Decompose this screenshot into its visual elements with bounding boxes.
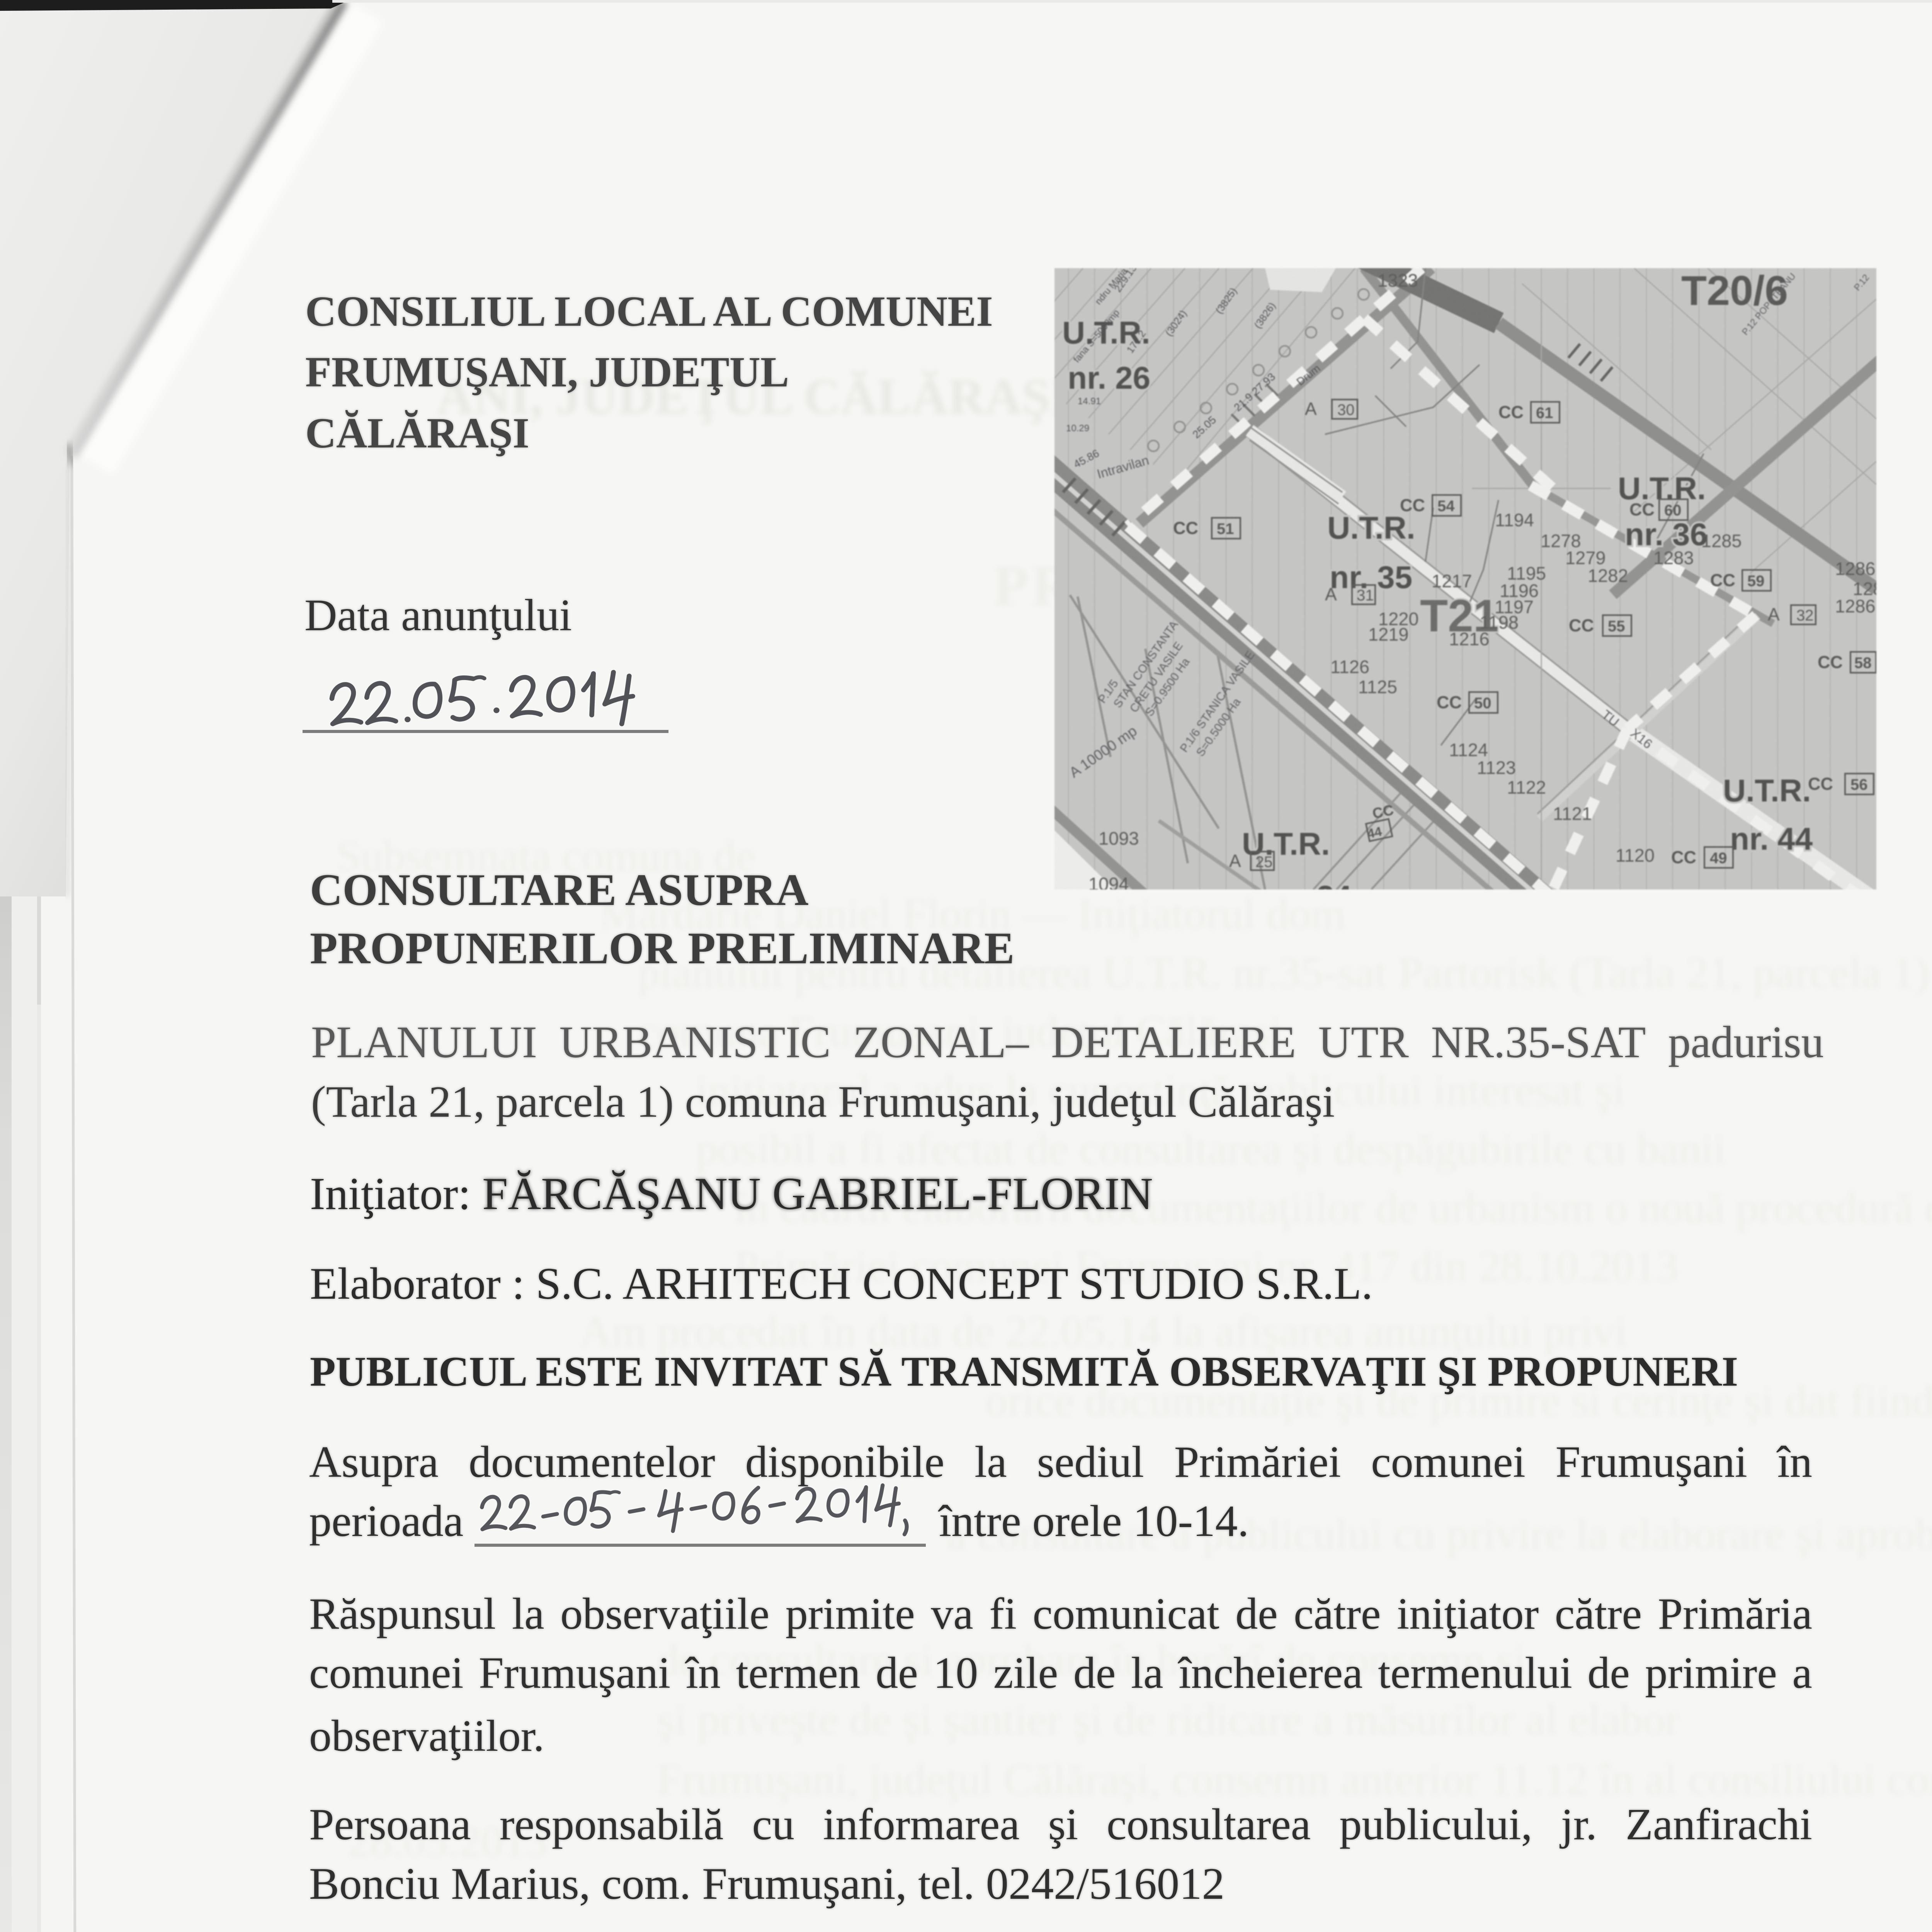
svg-text:10.29: 10.29 (1066, 423, 1089, 434)
svg-text:14.91: 14.91 (1078, 396, 1101, 406)
